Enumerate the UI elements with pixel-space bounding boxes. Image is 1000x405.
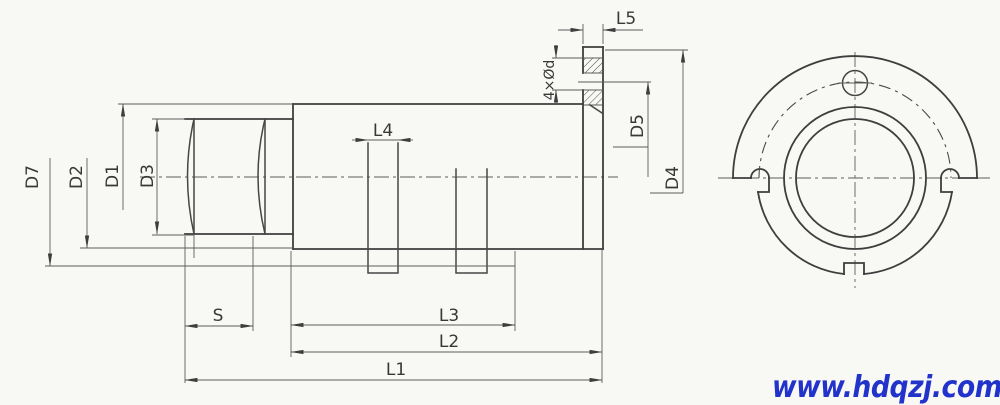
dimension-l3: L3 (291, 306, 515, 326)
dim-label-s: S (213, 306, 224, 326)
dimension-l4: L4 (352, 121, 413, 141)
front-view (718, 52, 990, 288)
bottom-notch (844, 263, 864, 274)
dimension-d3: D3 (138, 119, 158, 234)
groove-2 (456, 169, 487, 273)
dim-label-l1: L1 (386, 360, 406, 380)
dim-label-d2: D2 (67, 165, 87, 189)
technical-drawing: D7 D2 D1 D3 L4 L5 4×Ød (0, 0, 1000, 405)
hex-chamfer-arc-left (188, 119, 195, 234)
extension-lines (45, 24, 688, 383)
hex-chamfer-arc-mid (258, 119, 265, 234)
drawing-canvas: D7 D2 D1 D3 L4 L5 4×Ød (0, 0, 1000, 405)
dimension-d5: D5 (613, 82, 648, 177)
dimension-d1: D1 (103, 104, 123, 210)
dim-label-d1: D1 (103, 164, 123, 188)
dimension-bolt-holes: 4×Ød (542, 45, 558, 103)
dimension-d4: D4 (650, 50, 683, 193)
hex-section (185, 119, 293, 234)
cylinder-body (293, 104, 603, 249)
dimension-d2: D2 (67, 158, 87, 248)
dim-label-d3: D3 (138, 164, 158, 188)
dim-label-l4: L4 (373, 121, 393, 141)
flange-section (583, 47, 603, 249)
hatch-lower (584, 90, 602, 105)
side-section-view: D7 D2 D1 D3 L4 L5 4×Ød (23, 9, 688, 383)
dimension-d7: D7 (23, 158, 50, 266)
dim-label-l2: L2 (439, 332, 459, 352)
groove-1 (368, 143, 398, 273)
dim-label-d4: D4 (663, 166, 683, 190)
dim-label-d7: D7 (23, 165, 43, 189)
half-hole-right (941, 169, 959, 178)
flange-fillet (590, 105, 602, 113)
dimension-s: S (185, 306, 253, 326)
lower-arc-left (758, 192, 844, 274)
half-hole-left (751, 169, 769, 178)
dim-label-4xd: 4×Ød (542, 60, 558, 101)
dim-label-l5: L5 (616, 9, 636, 29)
dimension-l5: L5 (558, 9, 643, 30)
dim-label-d5: D5 (628, 114, 648, 138)
dimension-l2: L2 (291, 332, 602, 352)
watermark-text: www.hdqzj.com (772, 370, 1000, 405)
dimension-l1: L1 (185, 360, 602, 380)
hatch-upper (584, 58, 602, 73)
dim-label-l3: L3 (439, 306, 459, 326)
